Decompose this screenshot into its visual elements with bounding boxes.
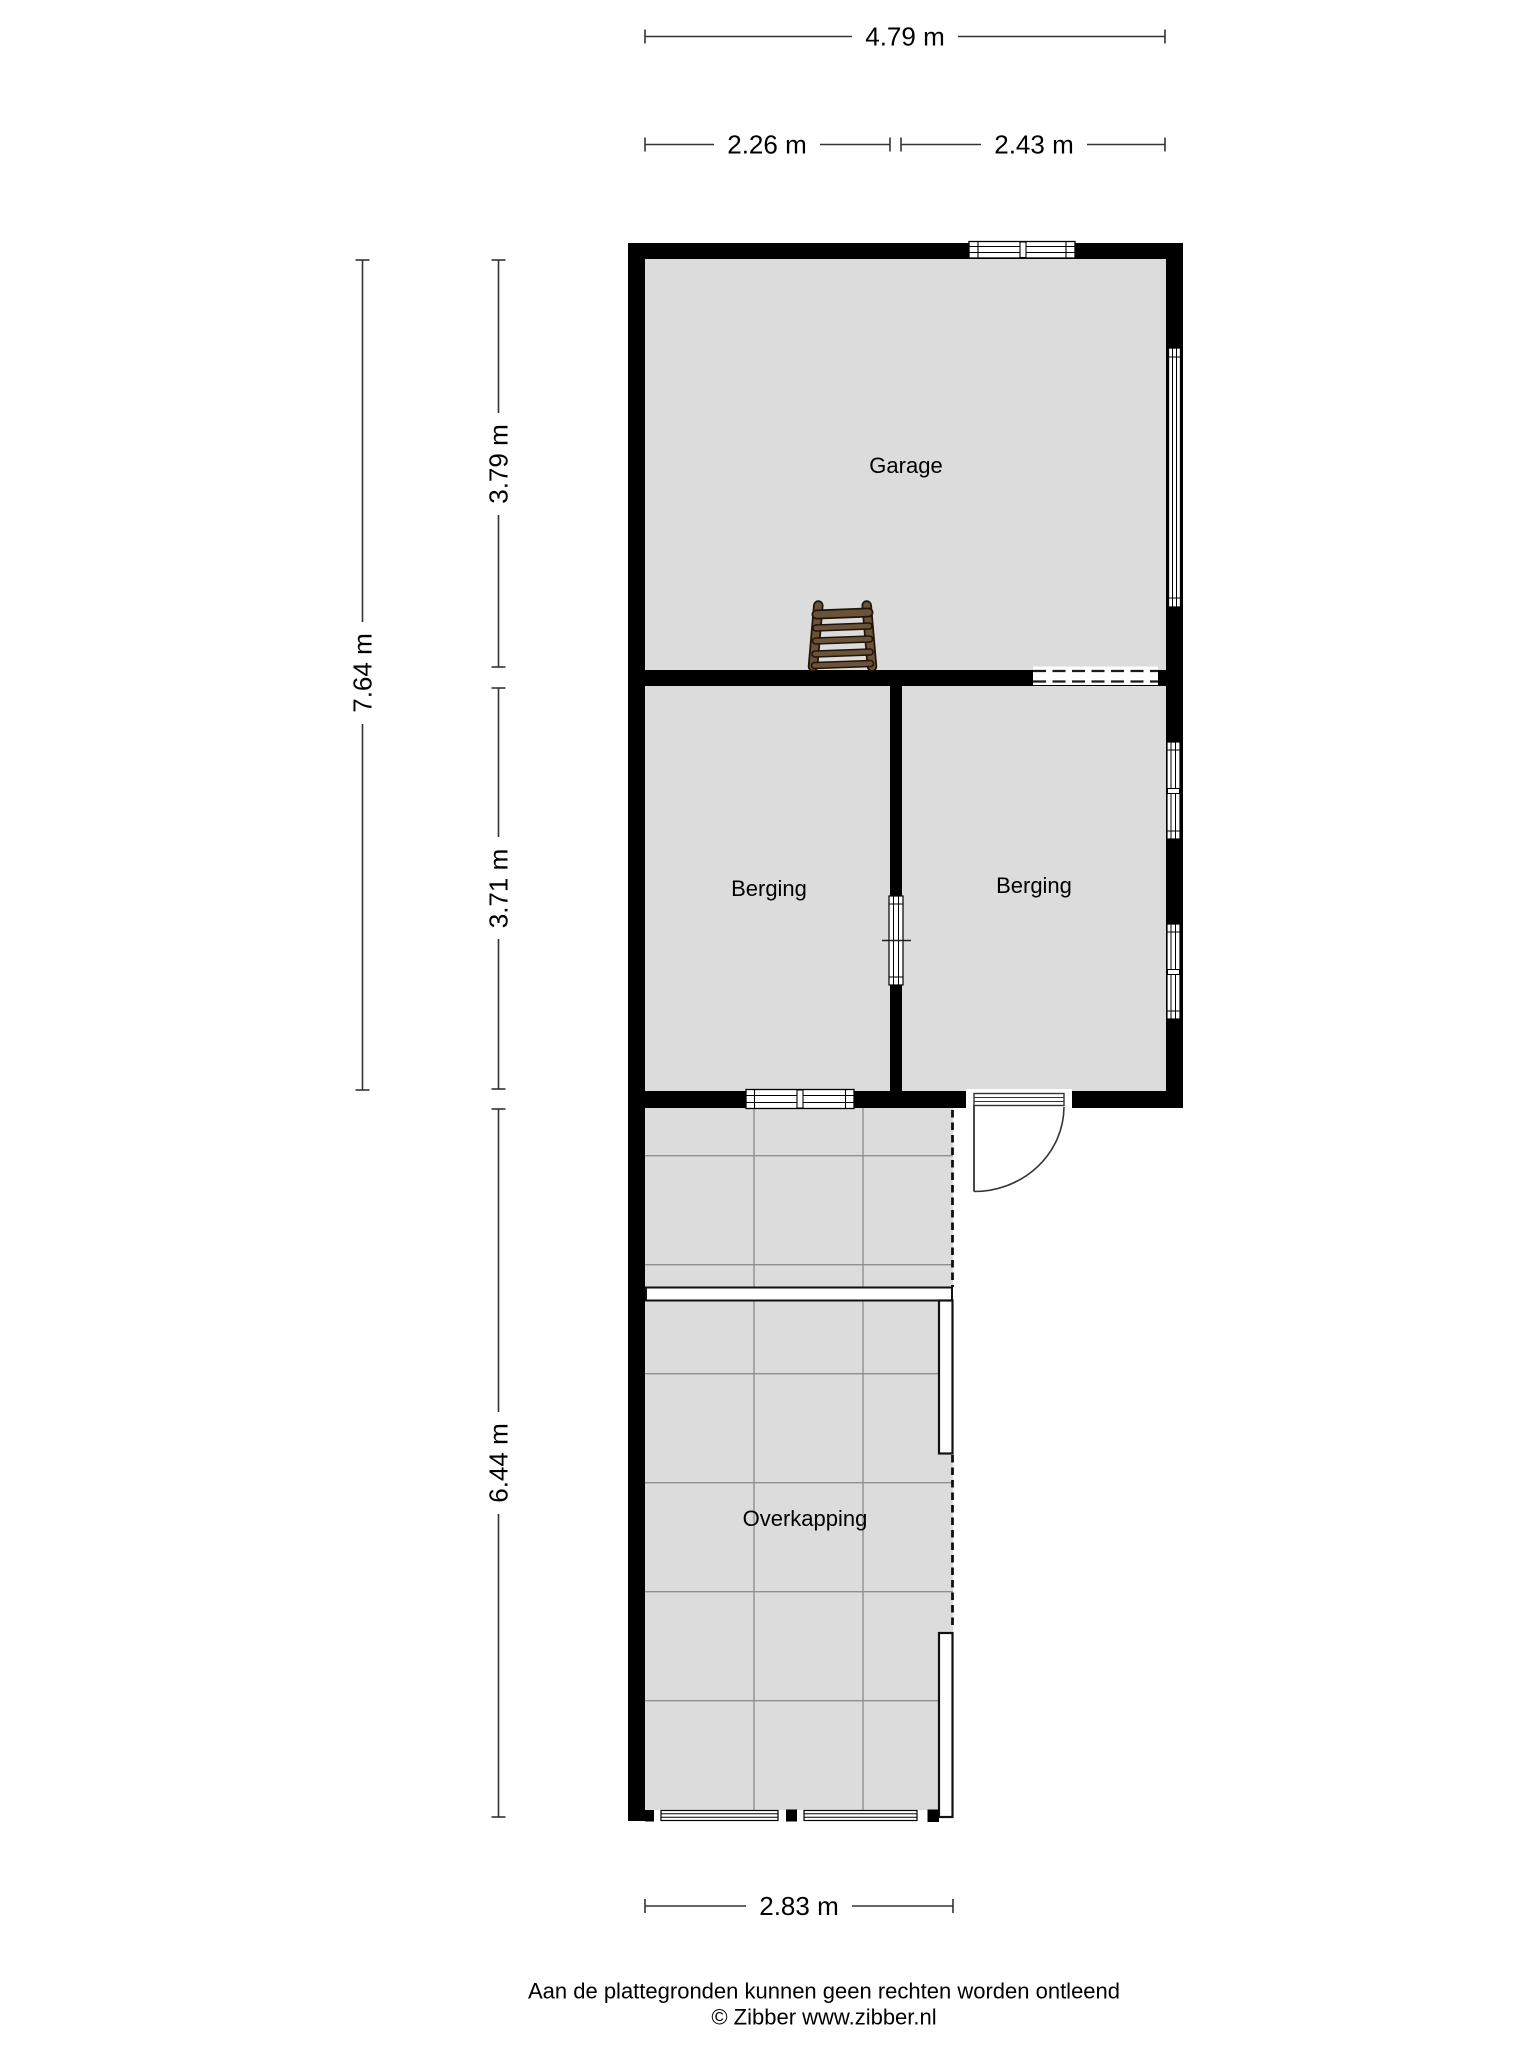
svg-text:3.79 m: 3.79 m	[484, 424, 514, 504]
svg-text:Berging: Berging	[996, 873, 1072, 898]
svg-text:7.64 m: 7.64 m	[348, 633, 378, 713]
svg-text:6.44 m: 6.44 m	[484, 1423, 514, 1503]
svg-text:2.26 m: 2.26 m	[727, 130, 807, 160]
svg-text:4.79 m: 4.79 m	[865, 22, 945, 52]
svg-text:Overkapping: Overkapping	[743, 1506, 868, 1531]
svg-text:Aan de plattegronden kunnen ge: Aan de plattegronden kunnen geen rechten…	[528, 1979, 1120, 2004]
svg-text:Berging: Berging	[731, 876, 807, 901]
svg-text:© Zibber www.zibber.nl: © Zibber www.zibber.nl	[711, 2005, 936, 2030]
svg-text:Garage: Garage	[869, 453, 942, 478]
svg-text:2.83 m: 2.83 m	[759, 1891, 839, 1921]
svg-text:3.71 m: 3.71 m	[484, 849, 514, 929]
svg-text:2.43 m: 2.43 m	[994, 130, 1074, 160]
